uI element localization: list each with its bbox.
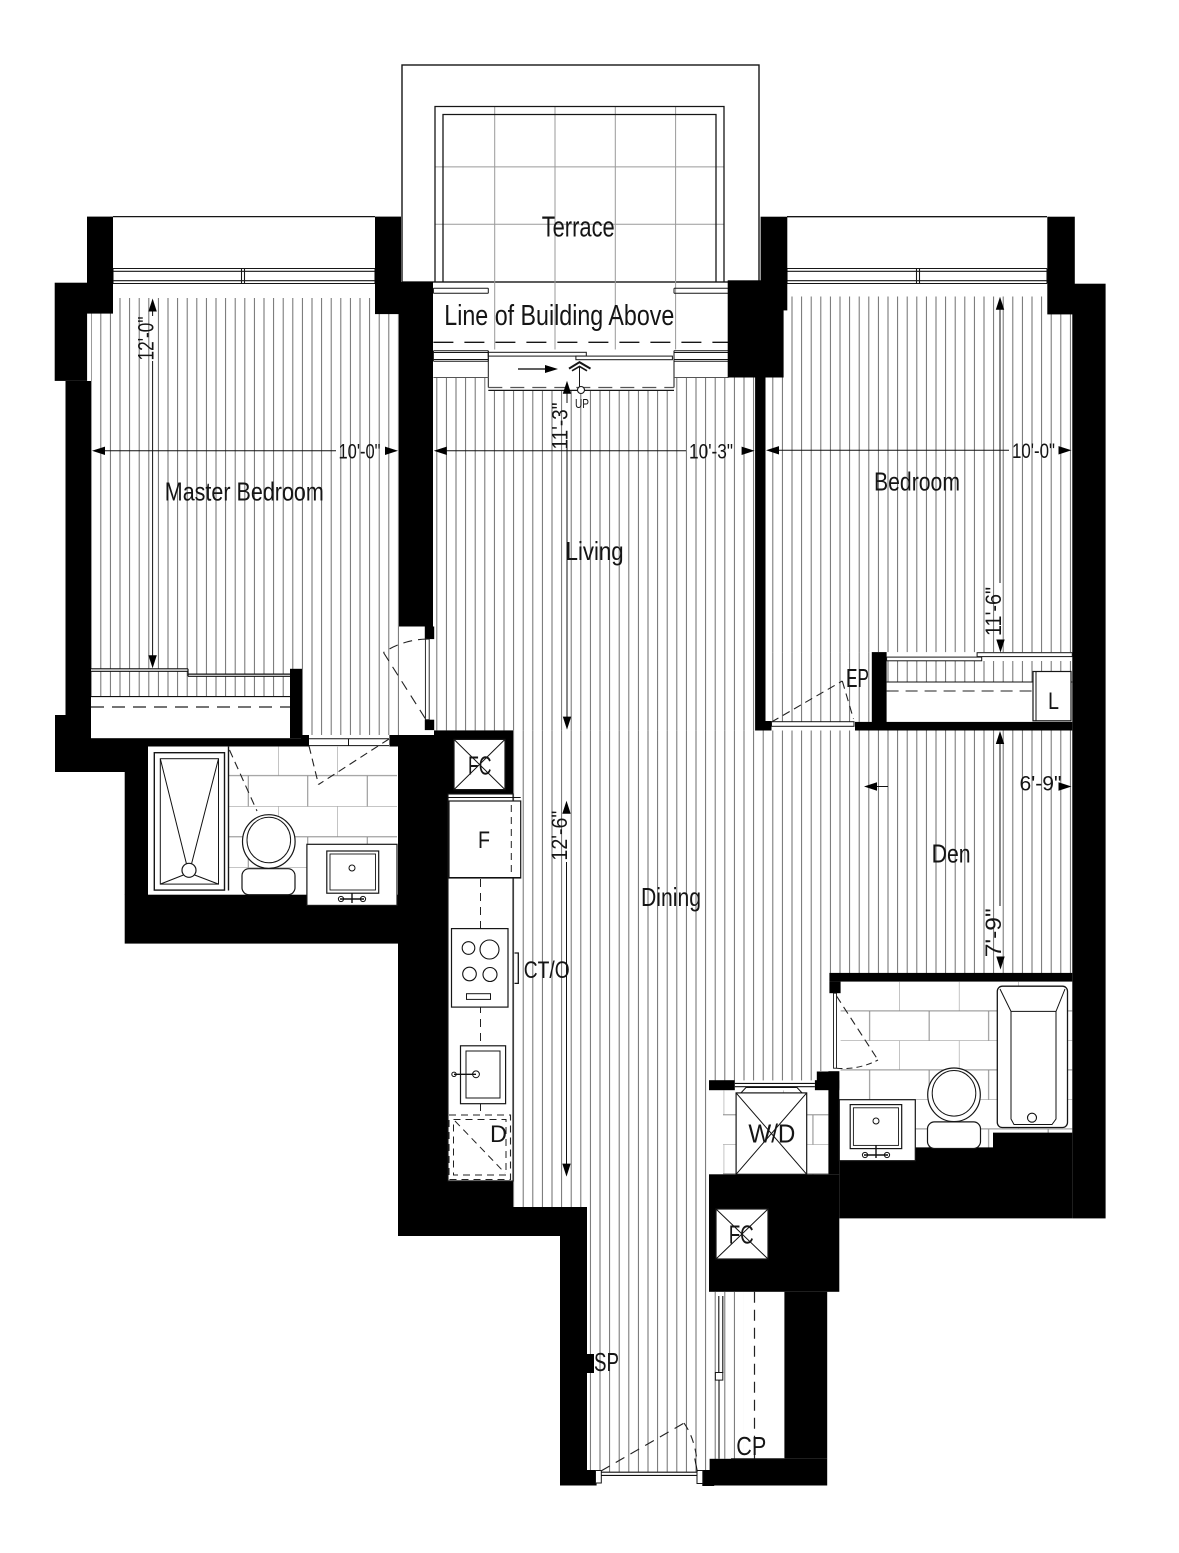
svg-text:Dining: Dining	[641, 882, 701, 912]
svg-text:Living: Living	[566, 536, 624, 566]
svg-text:7'-9": 7'-9"	[981, 908, 1006, 957]
svg-text:SP: SP	[594, 1347, 619, 1377]
svg-text:W/D: W/D	[748, 1119, 795, 1149]
svg-text:CT/O: CT/O	[524, 957, 570, 984]
svg-text:10'-3": 10'-3"	[689, 441, 733, 464]
svg-text:6'-9": 6'-9"	[1020, 773, 1062, 796]
svg-text:L: L	[1048, 688, 1059, 715]
svg-text:D: D	[490, 1121, 507, 1148]
svg-text:Den: Den	[932, 838, 971, 868]
svg-text:11'-3": 11'-3"	[548, 403, 573, 450]
svg-text:10'-0": 10'-0"	[339, 441, 381, 464]
svg-text:FC: FC	[468, 750, 492, 780]
svg-text:Terrace: Terrace	[542, 211, 615, 243]
svg-text:Line of Building Above: Line of Building Above	[444, 300, 674, 332]
svg-text:UP: UP	[575, 396, 589, 411]
svg-text:Bedroom: Bedroom	[874, 467, 960, 497]
svg-text:CP: CP	[736, 1431, 766, 1461]
svg-text:EP: EP	[846, 663, 869, 693]
svg-text:12'-0": 12'-0"	[134, 317, 159, 361]
svg-text:F: F	[478, 827, 490, 854]
svg-text:11'-6": 11'-6"	[981, 587, 1006, 636]
svg-text:12'-6": 12'-6"	[547, 811, 572, 861]
svg-text:FC: FC	[729, 1220, 754, 1250]
svg-text:Master Bedroom: Master Bedroom	[165, 477, 324, 507]
svg-text:10'-0": 10'-0"	[1012, 440, 1055, 463]
